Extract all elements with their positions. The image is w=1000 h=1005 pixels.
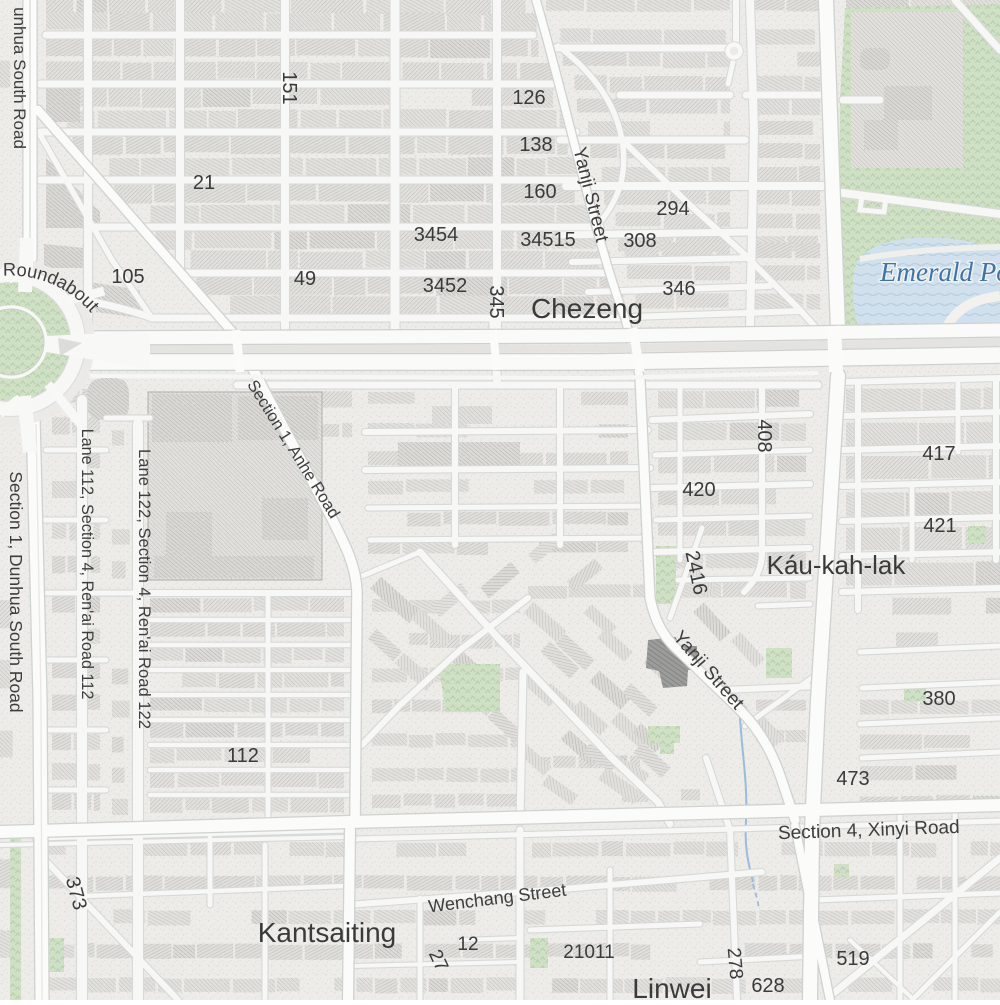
svg-text:138: 138 bbox=[519, 134, 552, 156]
svg-text:3454: 3454 bbox=[414, 224, 459, 246]
svg-text:380: 380 bbox=[922, 688, 955, 710]
svg-text:126: 126 bbox=[512, 87, 545, 109]
svg-text:Kantsaiting: Kantsaiting bbox=[258, 917, 397, 948]
svg-text:417: 417 bbox=[922, 443, 955, 465]
svg-text:278: 278 bbox=[723, 947, 747, 980]
svg-text:unhua South Road: unhua South Road bbox=[10, 7, 29, 149]
svg-text:420: 420 bbox=[682, 479, 715, 501]
svg-text:160: 160 bbox=[523, 181, 556, 203]
svg-text:Linwei: Linwei bbox=[632, 973, 711, 1000]
svg-text:Section 1, Dunhua South Road: Section 1, Dunhua South Road bbox=[6, 471, 26, 712]
svg-text:628: 628 bbox=[751, 975, 784, 997]
svg-text:21011: 21011 bbox=[563, 942, 614, 963]
svg-text:Emerald Pon: Emerald Pon bbox=[879, 257, 1000, 287]
svg-text:421: 421 bbox=[923, 515, 956, 537]
svg-text:12: 12 bbox=[457, 934, 478, 955]
svg-text:346: 346 bbox=[662, 278, 695, 300]
svg-text:345: 345 bbox=[485, 285, 507, 318]
svg-text:105: 105 bbox=[111, 266, 144, 288]
svg-text:3452: 3452 bbox=[423, 275, 468, 297]
svg-text:473: 473 bbox=[836, 768, 869, 790]
svg-text:294: 294 bbox=[656, 198, 689, 220]
svg-text:151: 151 bbox=[278, 71, 300, 104]
svg-text:112: 112 bbox=[227, 745, 259, 767]
svg-text:308: 308 bbox=[623, 230, 656, 252]
svg-text:Chezeng: Chezeng bbox=[531, 293, 643, 324]
svg-text:21: 21 bbox=[193, 172, 215, 194]
svg-text:Lane 112, Section 4, Ren'ai Ro: Lane 112, Section 4, Ren'ai Road 112 bbox=[78, 429, 96, 700]
svg-text:Káu-kah-lak: Káu-kah-lak bbox=[767, 550, 907, 580]
svg-text:519: 519 bbox=[836, 948, 869, 970]
svg-text:Lane 122, Section 4, Ren'ai Ro: Lane 122, Section 4, Ren'ai Road 122 bbox=[135, 449, 154, 729]
svg-text:49: 49 bbox=[294, 268, 316, 290]
svg-text:408: 408 bbox=[753, 419, 775, 452]
svg-text:34515: 34515 bbox=[520, 229, 576, 251]
